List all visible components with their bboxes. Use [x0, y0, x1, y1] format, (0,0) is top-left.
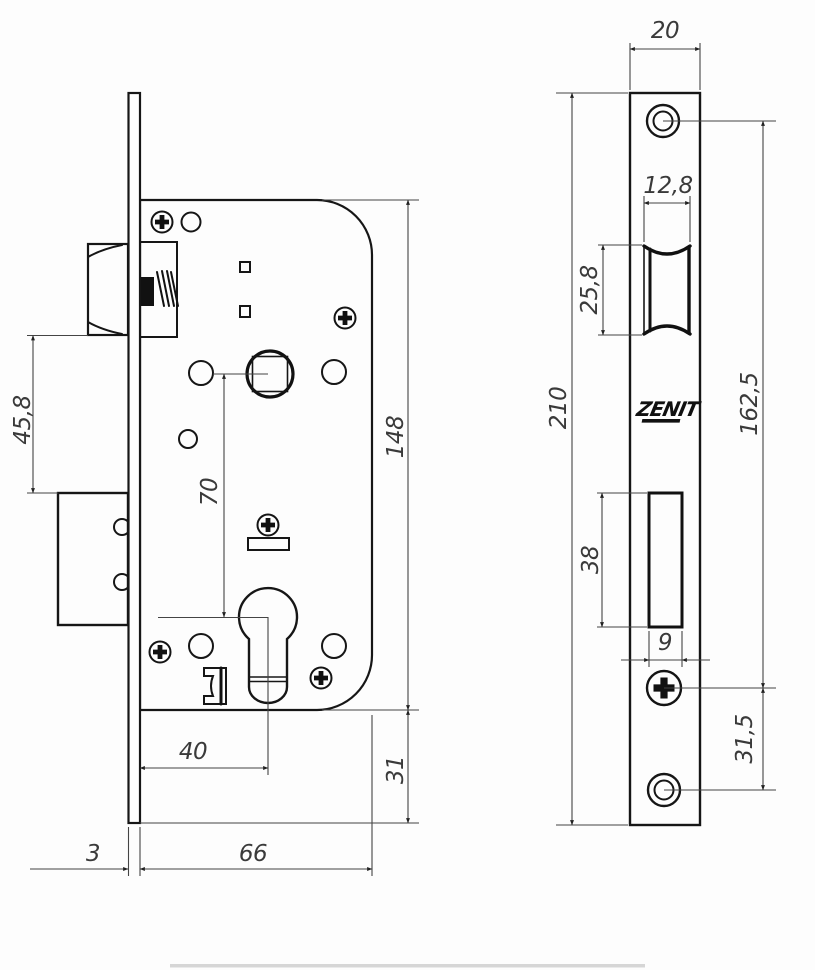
- lock-technical-drawing: 45,8 70 148 31 40 66 3 ZENIT: [0, 0, 815, 970]
- dim-plate-overhang: 31: [383, 756, 409, 784]
- case-hole: [182, 213, 201, 232]
- dim-bolt-cutout-width: 9: [658, 630, 672, 656]
- dim-spindle-to-cylinder: 70: [197, 478, 223, 506]
- latch-spring-coil: [157, 271, 178, 306]
- phillips-screw-icon: [258, 515, 279, 536]
- dim-latch-cutout-height: 25,8: [577, 265, 603, 314]
- case-hole: [189, 361, 213, 385]
- latch-bolt: [88, 244, 128, 335]
- brand-logo: ZENIT: [633, 397, 704, 422]
- case-hole: [322, 360, 346, 384]
- dim-plate-length: 210: [546, 387, 572, 429]
- brand-text: ZENIT: [633, 397, 703, 421]
- dim-plate-thickness: 3: [86, 841, 100, 867]
- dim-plate-width: 20: [651, 18, 679, 44]
- lock-drawing-page: 45,8 70 148 31 40 66 3 ZENIT: [0, 0, 815, 970]
- phillips-screw-icon: [152, 212, 173, 233]
- dim-screw-to-hole: 31,5: [732, 714, 758, 763]
- deadbolt: [58, 493, 128, 625]
- dim-latch-cutout-width: 12,8: [643, 173, 692, 199]
- stop-detail: [204, 668, 226, 704]
- left-view-dimension-labels: 45,8 70 148 31 40 66 3: [10, 395, 409, 867]
- case-square-hole: [240, 306, 250, 317]
- dim-backset: 40: [179, 739, 207, 765]
- dim-bolt-cutout-height: 38: [578, 546, 604, 574]
- case-hole: [322, 634, 346, 658]
- latch-spring-block: [141, 277, 154, 306]
- case-hole: [189, 634, 213, 658]
- dim-latch-to-deadbolt: 45,8: [10, 395, 36, 444]
- faceplate-side: [129, 93, 141, 823]
- dim-case-height: 148: [383, 416, 409, 458]
- phillips-screw-icon: [150, 642, 171, 663]
- phillips-screw-icon: [335, 308, 356, 329]
- page-edge-artifact: [170, 964, 645, 968]
- dim-case-depth: 66: [239, 841, 267, 867]
- case-square-hole: [240, 262, 250, 272]
- case-hole: [179, 430, 197, 448]
- dim-screw-spacing: 162,5: [737, 372, 763, 435]
- lever-plate: [248, 538, 289, 550]
- left-view-lock-body: [58, 93, 372, 823]
- phillips-screw-icon: [311, 668, 332, 689]
